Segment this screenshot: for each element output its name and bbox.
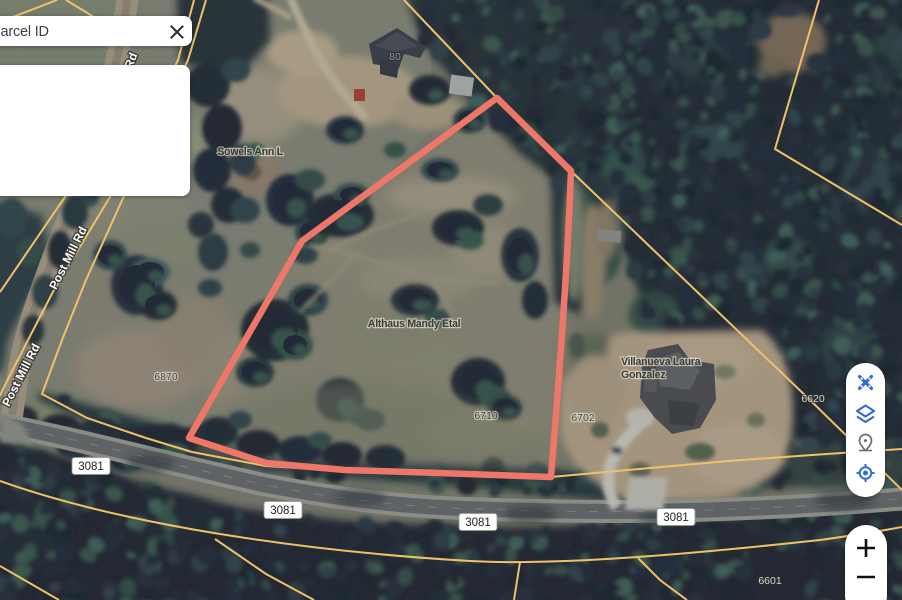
svg-text:Gonzalez: Gonzalez: [621, 369, 666, 381]
svg-text:3081: 3081: [663, 512, 689, 524]
svg-text:6710: 6710: [474, 410, 498, 422]
svg-text:3081: 3081: [270, 505, 296, 517]
svg-text:Sowels Ann L: Sowels Ann L: [217, 146, 283, 158]
svg-text:6620: 6620: [801, 393, 825, 405]
svg-text:6702: 6702: [571, 412, 595, 424]
svg-text:Villanueva Laura: Villanueva Laura: [621, 356, 702, 368]
svg-text:80: 80: [389, 51, 401, 63]
svg-text:Althaus Mandy Etal: Althaus Mandy Etal: [368, 318, 461, 330]
svg-text:3081: 3081: [465, 517, 491, 529]
svg-text:3081: 3081: [78, 461, 104, 473]
svg-text:6870: 6870: [154, 371, 178, 383]
svg-text:6601: 6601: [758, 575, 782, 587]
